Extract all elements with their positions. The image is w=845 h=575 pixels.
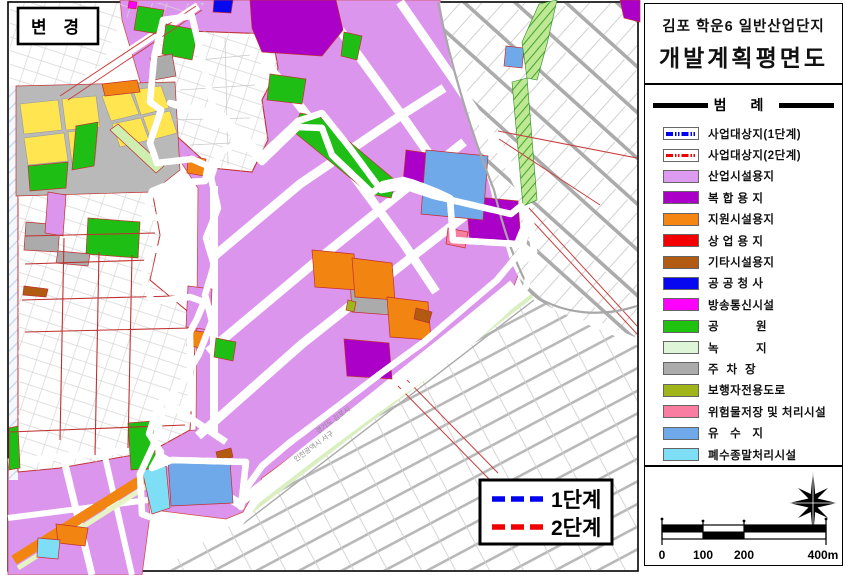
legend-item: 주 차 장 [645,358,842,379]
legend-header-text: 범 례 [708,95,780,115]
legend-color-swatch [663,170,699,183]
legend-item: 유 수 지 [645,422,842,443]
legend-color-swatch [663,405,699,418]
map-title: 개발계획평면도 [659,39,828,73]
phase-legend-box: 1단계 2단계 [480,480,612,544]
pedestrian-road-sliver [346,300,356,312]
map-subtitle: 김포 학운6 일반산업단지 [662,15,825,36]
scale-200: 200 [734,548,754,562]
change-label-box: 변 경 [18,8,98,44]
legend-color-swatch [663,213,699,226]
legend-color-swatch [663,427,699,440]
legend-item-label: 유 수 지 [708,425,763,441]
legend-line-swatch [663,127,699,140]
legend-color-swatch [663,234,699,247]
legend-item-label: 사업대상지(2단계) [708,147,801,163]
legend-color-swatch [663,298,699,311]
legend-color-swatch [663,320,699,333]
legend-header-bar-right [779,103,834,108]
legend-item: 방송통신시설 [645,294,842,315]
legend-item-label: 기타시설용지 [708,254,774,270]
legend-panel: 범 례 사업대상지(1단계)사업대상지(2단계)산업시설용지복 합 용 지지원시… [644,84,843,466]
map-title-box: 김포 학운6 일반산업단지 개발계획평면도 [644,3,843,84]
legend-line-swatch [663,149,699,162]
legend-color-swatch [663,277,699,290]
legend-header-bar-left [653,103,708,108]
legend-color-swatch [663,191,699,204]
legend-item: 지원시설용지 [645,209,842,230]
legend-item-label: 위험물저장 및 처리시설 [708,404,826,420]
legend-item-label: 폐수종말처리시설 [708,447,797,463]
legend-item: 공 원 [645,316,842,337]
legend-color-swatch [663,448,699,461]
scale-0: 0 [659,548,666,562]
scale-bar: 0 100 200 400m [659,517,839,561]
scale-compass-panel: 0 100 200 400m [644,466,843,566]
legend-item-label: 공 공 청 사 [708,275,763,291]
legend-item: 기타시설용지 [645,251,842,272]
legend-item: 사업대상지(2단계) [645,144,842,165]
legend-item-label: 녹 지 [708,340,767,356]
legend-item-label: 공 원 [708,318,767,334]
legend-item-label: 지원시설용지 [708,211,774,227]
legend-item-label: 보행자전용도로 [708,382,786,398]
scale-400: 400m [808,548,839,562]
legend-color-swatch [663,341,699,354]
legend-item: 산업시설용지 [645,166,842,187]
legend-item: 위험물저장 및 처리시설 [645,401,842,422]
plan-document: 경기도 김포시 인천광역시 서구 변 경 1단계 2단계 김포 학운6 일반산업… [0,0,845,575]
legend-item: 상 업 용 지 [645,230,842,251]
legend-item-label: 상 업 용 지 [708,233,763,249]
legend-item-label: 방송통신시설 [708,297,774,313]
legend-color-swatch [663,362,699,375]
legend-item: 폐수종말처리시설 [645,444,842,465]
legend-item: 보행자전용도로 [645,380,842,401]
legend-item: 사업대상지(1단계) [645,123,842,144]
legend-item: 공 공 청 사 [645,273,842,294]
public-office-parcel [213,0,233,13]
legend-item-label: 복 합 용 지 [708,190,763,206]
phase1-label: 1단계 [551,489,601,512]
change-label: 변 경 [31,18,85,37]
legend-item-list: 사업대상지(1단계)사업대상지(2단계)산업시설용지복 합 용 지지원시설용지상… [645,123,842,465]
legend-item-label: 주 차 장 [708,361,756,377]
legend-color-swatch [663,256,699,269]
legend-header: 범 례 [653,95,834,115]
phase2-label: 2단계 [551,517,601,540]
legend-item: 복 합 용 지 [645,187,842,208]
legend-item-label: 산업시설용지 [708,168,774,184]
legend-color-swatch [663,384,699,397]
legend-item: 녹 지 [645,337,842,358]
scale-compass-graphic: 0 100 200 400m [645,467,841,564]
broadcast-facility-parcel [128,1,137,9]
legend-item-label: 사업대상지(1단계) [708,126,801,142]
scale-100: 100 [693,548,713,562]
